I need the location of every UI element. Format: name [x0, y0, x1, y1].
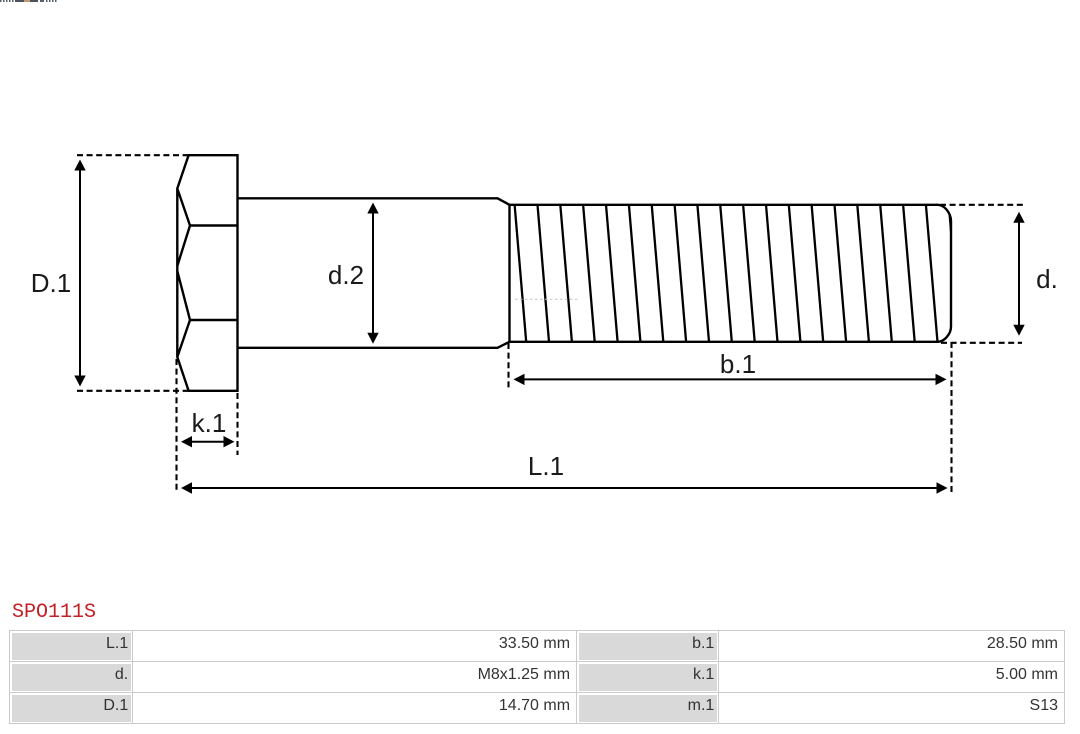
- svg-text:D.1: D.1: [31, 268, 71, 298]
- svg-text:d.: d.: [1036, 264, 1058, 294]
- svg-text:d.2: d.2: [328, 260, 364, 290]
- svg-text:k.1: k.1: [192, 408, 227, 438]
- svg-text:L.1: L.1: [528, 451, 564, 481]
- svg-text:b.1: b.1: [720, 349, 756, 379]
